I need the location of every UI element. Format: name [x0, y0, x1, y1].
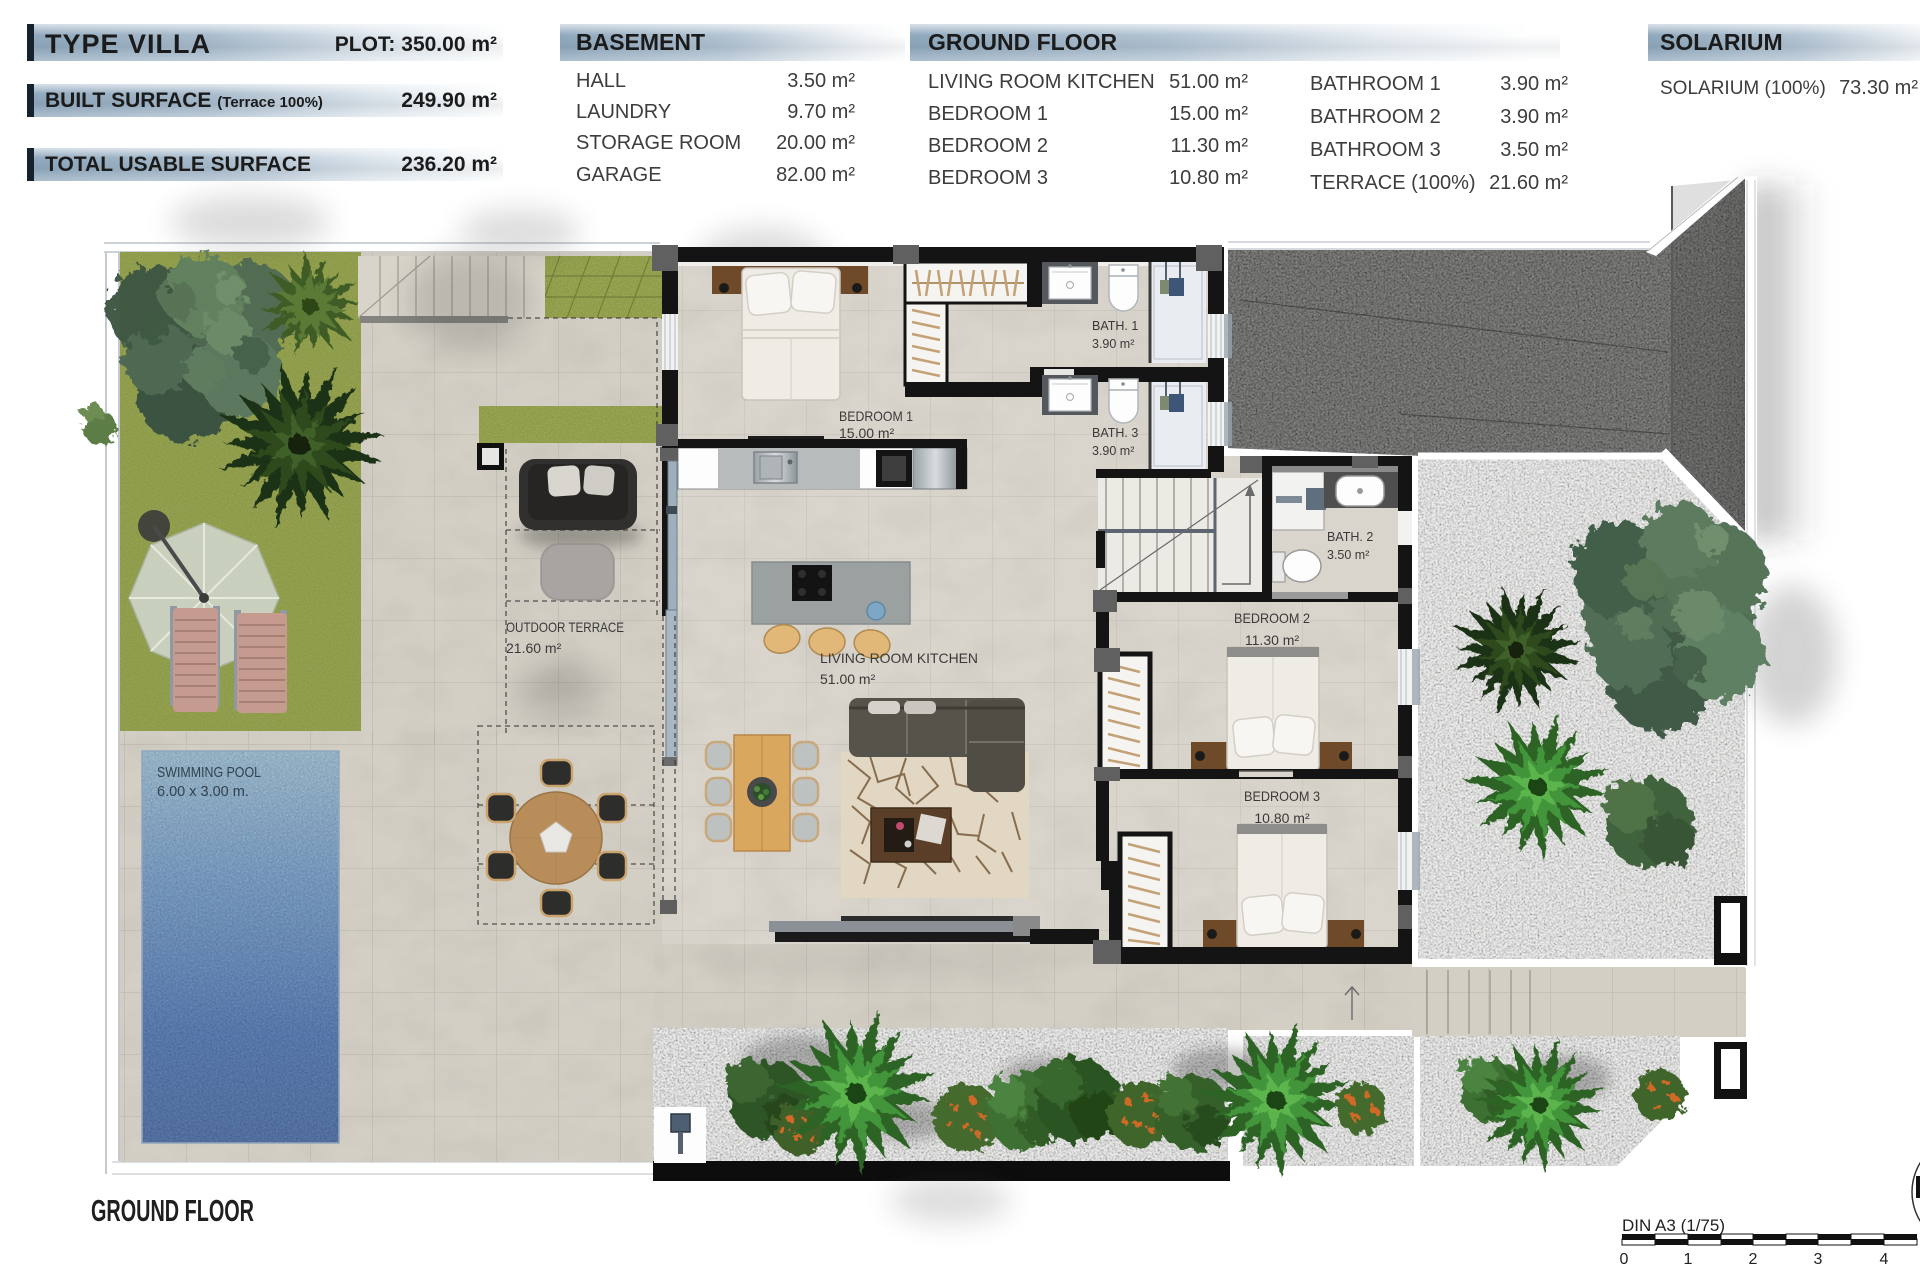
svg-text:15.00 m²: 15.00 m² [839, 425, 895, 441]
svg-text:0: 0 [1620, 1251, 1629, 1268]
svg-text:11.30 m²: 11.30 m² [1245, 632, 1300, 648]
svg-text:BATH. 1: BATH. 1 [1092, 319, 1138, 333]
svg-text:3: 3 [1814, 1251, 1823, 1268]
svg-text:4: 4 [1880, 1251, 1889, 1268]
svg-text:DIN A3 (1/75): DIN A3 (1/75) [1622, 1216, 1725, 1235]
svg-text:BEDROOM 3: BEDROOM 3 [1244, 788, 1320, 804]
svg-text:2: 2 [1749, 1251, 1758, 1268]
svg-text:BATH. 3: BATH. 3 [1092, 426, 1138, 440]
svg-text:BEDROOM 2: BEDROOM 2 [1234, 610, 1310, 626]
svg-text:GROUND FLOOR: GROUND FLOOR [91, 1193, 254, 1228]
svg-text:BATH. 2: BATH. 2 [1327, 530, 1373, 544]
svg-text:21.60 m²: 21.60 m² [506, 640, 562, 656]
svg-text:BEDROOM 1: BEDROOM 1 [839, 408, 913, 424]
svg-text:3.90 m²: 3.90 m² [1092, 444, 1134, 458]
svg-text:LIVING ROOM KITCHEN: LIVING ROOM KITCHEN [820, 650, 978, 666]
svg-text:SWIMMING POOL: SWIMMING POOL [157, 765, 261, 781]
svg-text:3.90 m²: 3.90 m² [1092, 337, 1134, 351]
svg-text:OUTDOOR TERRACE: OUTDOOR TERRACE [506, 619, 624, 635]
svg-text:1: 1 [1684, 1251, 1693, 1268]
svg-text:6.00 x 3.00 m.: 6.00 x 3.00 m. [157, 784, 249, 800]
svg-text:51.00 m²: 51.00 m² [820, 671, 876, 687]
svg-text:3.50 m²: 3.50 m² [1327, 548, 1369, 562]
